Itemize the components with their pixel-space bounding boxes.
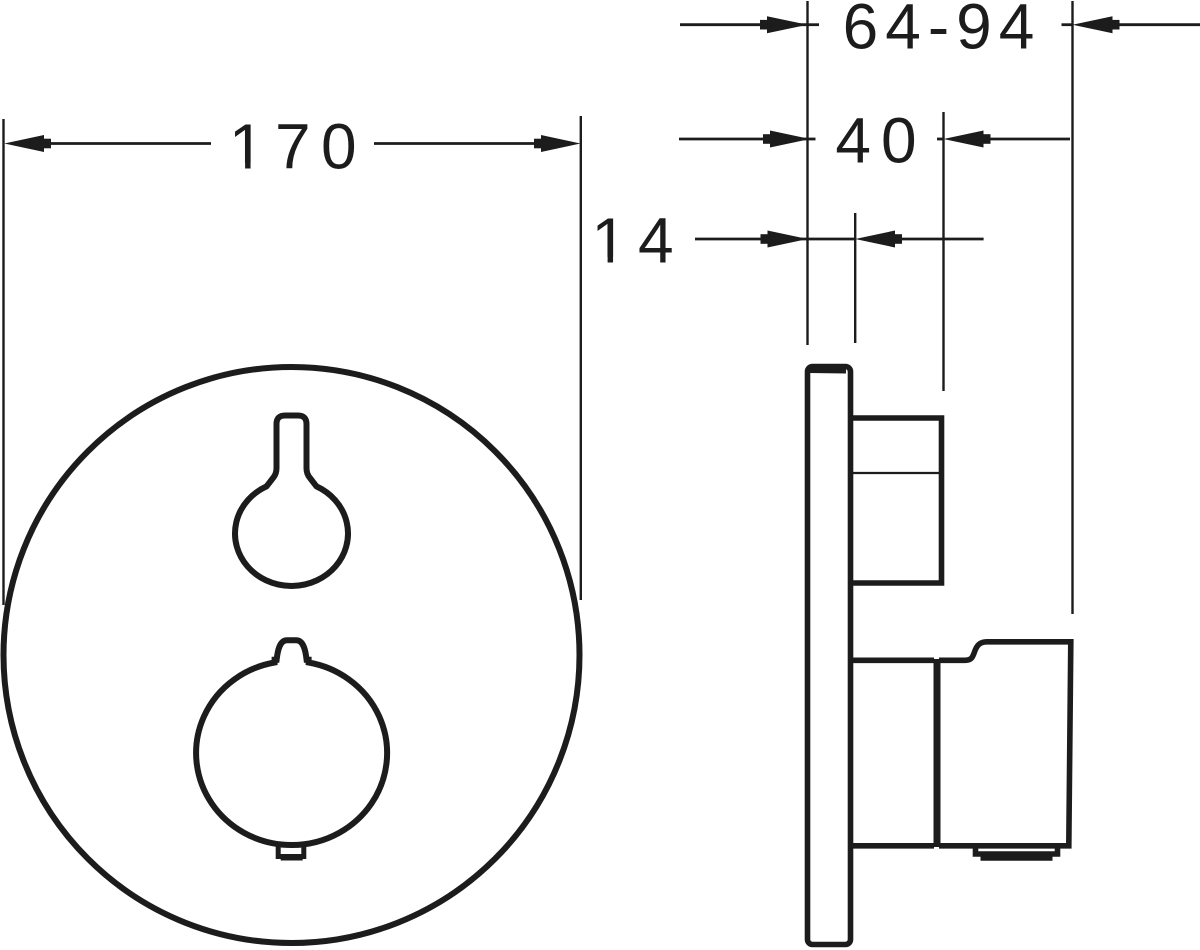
svg-text:170: 170 — [229, 111, 367, 183]
svg-text:40: 40 — [835, 105, 926, 177]
svg-text:14: 14 — [591, 205, 684, 277]
svg-text:64-94: 64-94 — [843, 0, 1042, 63]
